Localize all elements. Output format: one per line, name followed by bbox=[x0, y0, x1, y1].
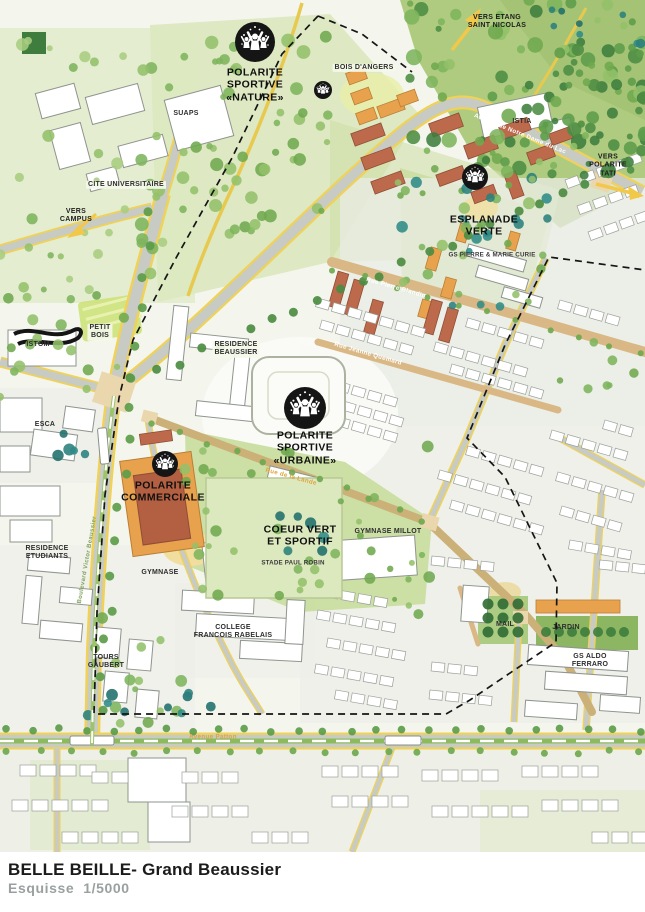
tree bbox=[90, 57, 99, 66]
tree bbox=[437, 240, 448, 251]
tree bbox=[92, 291, 101, 300]
tree bbox=[367, 546, 376, 555]
house bbox=[331, 667, 345, 678]
tree bbox=[250, 219, 261, 230]
tree bbox=[586, 161, 592, 167]
tree bbox=[198, 585, 207, 594]
house bbox=[12, 800, 28, 811]
street-tree bbox=[163, 747, 170, 754]
tree bbox=[192, 543, 199, 550]
street-tree bbox=[163, 725, 171, 733]
tree bbox=[405, 74, 414, 83]
street-tree bbox=[397, 506, 403, 512]
tree bbox=[135, 154, 147, 166]
house bbox=[372, 796, 388, 807]
tree bbox=[259, 164, 270, 175]
street-tree bbox=[290, 747, 297, 754]
street-tree bbox=[385, 748, 392, 755]
street-tree bbox=[477, 725, 485, 733]
tree bbox=[407, 0, 413, 6]
house bbox=[432, 806, 448, 817]
tree bbox=[165, 83, 173, 91]
street-tree bbox=[216, 343, 225, 352]
tree bbox=[66, 345, 76, 355]
tree bbox=[330, 549, 340, 559]
tree bbox=[111, 157, 123, 169]
street-tree bbox=[68, 747, 75, 754]
street-tree bbox=[485, 219, 494, 228]
tree bbox=[486, 193, 495, 202]
house bbox=[422, 770, 438, 781]
tree bbox=[576, 69, 584, 77]
street-tree bbox=[148, 420, 154, 426]
tree bbox=[318, 208, 324, 214]
tree bbox=[132, 686, 138, 692]
tours-gaubert-building bbox=[95, 627, 122, 659]
tree bbox=[324, 139, 330, 145]
tree bbox=[438, 18, 445, 25]
street-tree bbox=[176, 361, 185, 370]
house bbox=[343, 641, 357, 652]
tree bbox=[608, 355, 618, 365]
tree bbox=[583, 78, 591, 86]
house bbox=[602, 800, 618, 811]
tree bbox=[530, 5, 543, 18]
house bbox=[32, 800, 48, 811]
tree bbox=[547, 169, 556, 178]
tree bbox=[315, 579, 324, 588]
tree bbox=[395, 179, 402, 186]
tree bbox=[413, 609, 423, 619]
tree bbox=[316, 121, 325, 130]
building bbox=[128, 758, 186, 802]
jardin-tree bbox=[580, 627, 590, 637]
street-tree bbox=[585, 726, 593, 734]
tree bbox=[18, 282, 29, 293]
tree bbox=[106, 689, 118, 701]
street-tree bbox=[559, 188, 568, 197]
tree bbox=[423, 269, 434, 280]
tree bbox=[501, 109, 516, 124]
street-tree bbox=[600, 169, 609, 178]
tree bbox=[625, 65, 632, 72]
tree bbox=[137, 64, 149, 76]
tree bbox=[3, 293, 14, 304]
street-tree bbox=[55, 724, 63, 732]
house bbox=[632, 563, 645, 573]
tree bbox=[552, 118, 559, 125]
building bbox=[59, 587, 92, 606]
street-tree bbox=[38, 747, 45, 754]
tree bbox=[629, 18, 636, 25]
tree bbox=[79, 51, 90, 62]
tree bbox=[212, 590, 223, 601]
tree bbox=[488, 24, 503, 39]
tree bbox=[275, 591, 284, 600]
tree bbox=[436, 26, 442, 32]
tree bbox=[24, 37, 32, 45]
tree bbox=[70, 447, 78, 455]
tree bbox=[466, 248, 473, 255]
tree bbox=[323, 110, 332, 119]
tree bbox=[566, 82, 573, 89]
house bbox=[582, 766, 598, 777]
tree bbox=[66, 276, 73, 283]
street-tree bbox=[177, 429, 183, 435]
tree bbox=[406, 49, 422, 65]
street-tree bbox=[322, 749, 329, 756]
tree bbox=[550, 162, 557, 169]
street-tree bbox=[511, 749, 518, 756]
street-tree bbox=[394, 285, 400, 291]
street-tree bbox=[397, 258, 406, 267]
tree bbox=[406, 130, 420, 144]
tree bbox=[387, 566, 393, 572]
tree bbox=[180, 148, 188, 156]
tree bbox=[231, 175, 241, 185]
tree bbox=[297, 45, 311, 59]
tree bbox=[223, 87, 235, 99]
street-tree bbox=[365, 496, 371, 502]
tree bbox=[105, 229, 113, 237]
tree bbox=[496, 11, 504, 19]
tree bbox=[56, 319, 67, 330]
tree bbox=[583, 384, 592, 393]
tree bbox=[120, 707, 129, 716]
house bbox=[347, 670, 361, 681]
tree bbox=[420, 190, 426, 196]
tree bbox=[582, 132, 589, 139]
house bbox=[464, 559, 478, 569]
house bbox=[447, 664, 461, 674]
house bbox=[462, 693, 476, 703]
street-tree bbox=[484, 308, 490, 314]
tree bbox=[293, 153, 306, 166]
tree bbox=[135, 677, 143, 685]
house bbox=[381, 621, 395, 632]
street-tree bbox=[541, 750, 548, 757]
tree bbox=[198, 464, 208, 474]
building bbox=[0, 486, 60, 516]
tree bbox=[500, 157, 510, 167]
house bbox=[363, 673, 377, 684]
street-tree bbox=[352, 749, 359, 756]
house bbox=[359, 644, 373, 655]
tree bbox=[505, 137, 516, 148]
street-tree bbox=[131, 750, 138, 757]
tree bbox=[405, 576, 411, 582]
tree bbox=[554, 48, 565, 59]
street-tree bbox=[477, 747, 484, 754]
tree bbox=[459, 202, 470, 213]
tree bbox=[624, 142, 637, 155]
tree bbox=[608, 139, 620, 151]
map-drawing bbox=[0, 0, 645, 852]
tree bbox=[42, 130, 54, 142]
house bbox=[292, 832, 308, 843]
tree bbox=[571, 59, 578, 66]
jardin-tree bbox=[567, 627, 577, 637]
street-tree bbox=[240, 725, 248, 733]
street-tree bbox=[111, 728, 119, 736]
tree bbox=[184, 689, 193, 698]
street-tree bbox=[329, 268, 335, 274]
tree bbox=[247, 469, 256, 478]
house bbox=[592, 832, 608, 843]
tree bbox=[202, 507, 209, 514]
house bbox=[252, 832, 268, 843]
tree bbox=[635, 107, 643, 115]
house bbox=[542, 766, 558, 777]
street-tree bbox=[344, 484, 350, 490]
tree bbox=[614, 43, 625, 54]
house bbox=[562, 800, 578, 811]
tree bbox=[41, 287, 47, 293]
tree bbox=[164, 703, 172, 711]
house bbox=[342, 766, 358, 777]
house bbox=[365, 619, 379, 630]
residence-etudiants-building bbox=[27, 554, 70, 574]
tree bbox=[144, 179, 156, 191]
tree bbox=[424, 147, 431, 154]
tree bbox=[7, 343, 16, 352]
street-tree bbox=[313, 296, 322, 305]
street-tree bbox=[3, 748, 10, 755]
house bbox=[447, 558, 461, 568]
tree bbox=[52, 450, 63, 461]
street-tree bbox=[448, 242, 457, 251]
tree bbox=[60, 430, 68, 438]
house bbox=[452, 806, 468, 817]
street-tree bbox=[126, 374, 135, 383]
mail-tree bbox=[498, 599, 509, 610]
tree bbox=[588, 62, 595, 69]
tree bbox=[578, 121, 585, 128]
street-tree bbox=[268, 314, 277, 323]
house bbox=[333, 613, 347, 624]
building bbox=[525, 700, 578, 720]
tree bbox=[553, 71, 560, 78]
tree bbox=[310, 565, 319, 574]
street-tree bbox=[96, 672, 105, 681]
tree bbox=[505, 182, 512, 189]
house bbox=[431, 662, 445, 672]
tree bbox=[121, 205, 129, 213]
street-tree bbox=[215, 725, 223, 733]
house bbox=[462, 770, 478, 781]
tree bbox=[504, 85, 514, 95]
mail-tree bbox=[513, 627, 524, 638]
tree bbox=[10, 367, 19, 376]
tree bbox=[94, 326, 106, 338]
tree bbox=[532, 103, 544, 115]
tree bbox=[94, 177, 100, 183]
street-tree bbox=[295, 727, 303, 735]
building bbox=[285, 600, 305, 645]
street-tree bbox=[108, 607, 117, 616]
street-tree bbox=[246, 324, 255, 333]
house bbox=[599, 560, 613, 570]
street-tree bbox=[227, 748, 234, 755]
tree bbox=[305, 517, 316, 528]
tree bbox=[431, 165, 439, 173]
jardin-tree bbox=[619, 627, 629, 637]
house bbox=[40, 765, 56, 776]
house bbox=[349, 616, 363, 627]
tree bbox=[482, 156, 490, 164]
house bbox=[383, 699, 397, 710]
house bbox=[112, 772, 128, 783]
tree bbox=[536, 158, 543, 165]
tree bbox=[47, 45, 53, 51]
tree bbox=[576, 31, 583, 38]
tree bbox=[114, 364, 120, 370]
tree bbox=[281, 34, 295, 48]
street-tree bbox=[144, 207, 153, 216]
mail-tree bbox=[513, 599, 524, 610]
street-tree bbox=[319, 728, 327, 736]
tree bbox=[156, 636, 164, 644]
street-tree bbox=[122, 470, 131, 479]
tree bbox=[607, 108, 618, 119]
tree bbox=[23, 293, 32, 302]
tree bbox=[357, 532, 364, 539]
mail-tree bbox=[483, 627, 494, 638]
building bbox=[39, 620, 82, 642]
tree bbox=[449, 302, 457, 310]
tree bbox=[297, 587, 304, 594]
house bbox=[272, 832, 288, 843]
tree bbox=[504, 240, 512, 248]
street-tree bbox=[464, 231, 473, 240]
street-tree bbox=[146, 241, 155, 250]
street-tree bbox=[105, 572, 114, 581]
house bbox=[482, 770, 498, 781]
house bbox=[612, 832, 628, 843]
tree bbox=[629, 368, 638, 377]
tree bbox=[585, 123, 596, 134]
house bbox=[314, 664, 328, 675]
tree bbox=[179, 206, 187, 214]
house bbox=[92, 772, 108, 783]
house bbox=[362, 766, 378, 777]
tree bbox=[489, 129, 505, 145]
tree bbox=[25, 243, 33, 251]
tree bbox=[97, 612, 108, 623]
tree bbox=[426, 132, 441, 147]
tree bbox=[586, 111, 599, 124]
house bbox=[341, 591, 355, 602]
street-tree bbox=[637, 728, 645, 736]
tree bbox=[409, 560, 415, 566]
tree bbox=[194, 549, 205, 560]
tree bbox=[572, 44, 584, 56]
tree bbox=[137, 642, 147, 652]
tree bbox=[512, 291, 520, 299]
street-tree bbox=[100, 748, 107, 755]
tree bbox=[143, 717, 154, 728]
house bbox=[357, 594, 371, 605]
tree bbox=[580, 171, 589, 180]
tree bbox=[209, 199, 222, 212]
house bbox=[391, 649, 405, 660]
house bbox=[431, 556, 445, 566]
tree bbox=[93, 249, 103, 259]
tree bbox=[602, 44, 615, 57]
house bbox=[382, 766, 398, 777]
street-tree bbox=[419, 518, 425, 524]
street-tree bbox=[317, 476, 323, 482]
street-tree bbox=[289, 308, 298, 317]
tree bbox=[137, 238, 147, 248]
tree bbox=[426, 76, 438, 88]
tree bbox=[275, 511, 285, 521]
tree bbox=[401, 186, 410, 195]
street-tree bbox=[256, 748, 263, 755]
house bbox=[182, 772, 198, 783]
tree bbox=[58, 253, 64, 259]
tree bbox=[539, 252, 546, 259]
tree bbox=[104, 699, 112, 707]
street-tree bbox=[609, 725, 617, 733]
street-tree bbox=[452, 726, 460, 734]
tree bbox=[83, 385, 91, 393]
tree bbox=[274, 120, 281, 127]
jardin-tree bbox=[541, 627, 551, 637]
tree bbox=[419, 244, 426, 251]
tree bbox=[540, 132, 549, 141]
street-tree bbox=[362, 273, 368, 279]
street-tree bbox=[424, 294, 430, 300]
tree bbox=[512, 161, 526, 175]
tree bbox=[85, 285, 94, 294]
esplanade-verte-icon bbox=[462, 164, 488, 190]
house bbox=[232, 806, 248, 817]
house bbox=[352, 796, 368, 807]
street-tree bbox=[606, 747, 613, 754]
street-tree bbox=[336, 284, 345, 293]
street-tree bbox=[535, 199, 544, 208]
street-tree bbox=[126, 435, 135, 444]
tree bbox=[180, 53, 188, 61]
tree bbox=[450, 9, 461, 20]
house bbox=[568, 540, 582, 551]
street-tree bbox=[575, 750, 582, 757]
street-tree bbox=[556, 725, 564, 733]
house bbox=[464, 665, 478, 675]
house bbox=[62, 832, 78, 843]
street-tree bbox=[448, 747, 455, 754]
tree bbox=[562, 113, 575, 126]
building bbox=[63, 406, 96, 432]
tree bbox=[205, 36, 218, 49]
street-tree bbox=[372, 726, 380, 734]
street-tree bbox=[576, 334, 582, 340]
tree bbox=[338, 498, 344, 504]
tree bbox=[475, 137, 484, 146]
tree bbox=[590, 338, 599, 347]
tree bbox=[551, 23, 558, 30]
tree bbox=[32, 334, 42, 344]
jardin-tree bbox=[606, 627, 616, 637]
street-tree bbox=[135, 727, 143, 735]
jardin-tree bbox=[593, 627, 603, 637]
tree bbox=[152, 132, 160, 140]
house bbox=[222, 772, 238, 783]
street-tree bbox=[580, 180, 589, 189]
tree bbox=[277, 109, 285, 117]
tree bbox=[124, 675, 135, 686]
